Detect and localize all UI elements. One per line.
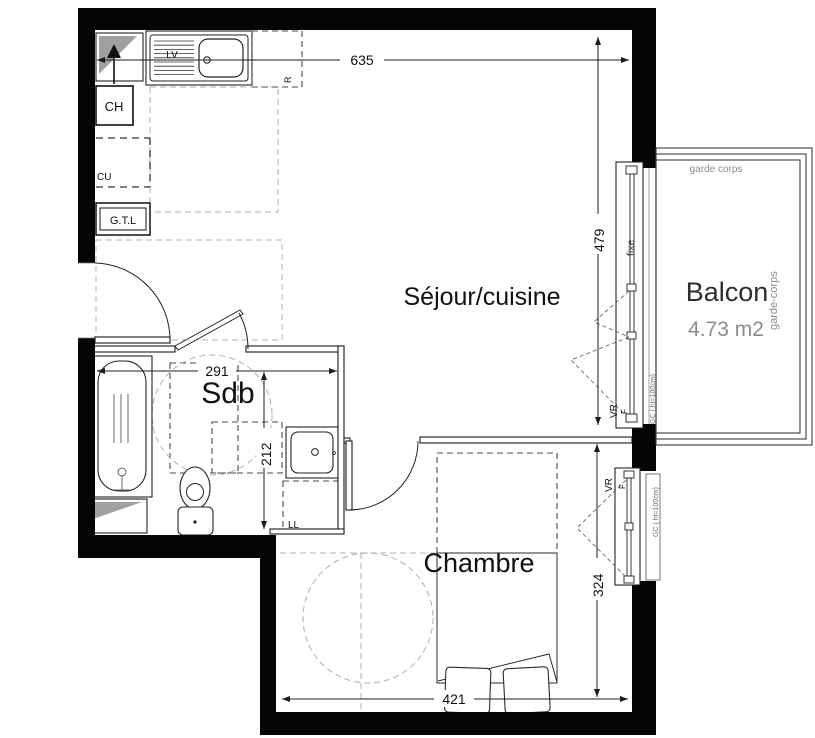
balcony-area: 4.73 m2 (688, 318, 764, 341)
fridge-zone: R (252, 31, 302, 87)
bed-clearance-zone (437, 453, 557, 553)
vr-label: VR (609, 404, 620, 418)
dishwasher-label: LV (166, 50, 178, 61)
room-label-sdb: Sdb (201, 377, 254, 410)
fixe-label: fixe (625, 240, 637, 257)
cu-label: CU (97, 172, 111, 183)
bedroom-door (346, 441, 418, 510)
water-heater-box: CH (96, 86, 133, 125)
kitchen-clearance-zone (150, 87, 278, 212)
toilet (178, 467, 213, 535)
entry-opening-edges (78, 263, 95, 338)
bath-shelf-box (90, 499, 147, 533)
interior-walls (94, 346, 632, 534)
gtl-label: G.T.L (110, 215, 136, 227)
entry-door (95, 263, 170, 343)
gtl-box: G.T.L (96, 203, 150, 235)
fridge-label: R (283, 76, 293, 83)
f-label: F (618, 484, 627, 489)
floorplan-svg: CH CU G.T.L LV R (0, 0, 815, 738)
window-sejour: fixe VR F GC ( ht=100cm) (571, 162, 657, 428)
cu-zone: CU (96, 138, 150, 187)
garde-corps-right-label: garde-corps (768, 271, 780, 330)
gc-note: GC ( ht=100cm) (650, 374, 657, 424)
dim-212: 212 (256, 372, 274, 529)
gc-note: GC ( ht=100cm) (653, 487, 660, 537)
dim-421: 421 (282, 690, 628, 707)
entry-shelf-box (96, 33, 143, 84)
dim-label: 635 (350, 52, 374, 68)
entry-clearance-zone (96, 240, 282, 340)
balcony-label: Balcon (686, 277, 769, 307)
washing-machine-zone: LL (283, 481, 339, 533)
dim-label: 212 (258, 442, 274, 466)
floorplan: CH CU G.T.L LV R (0, 0, 815, 738)
garde-corps-top-label: garde corps (690, 164, 743, 175)
dim-label: 479 (591, 228, 607, 252)
turning-circle-bedroom (280, 553, 437, 711)
water-heater-label: CH (105, 99, 124, 114)
pillow (503, 667, 550, 714)
vr-label: VR (604, 478, 615, 492)
dim-479: 479 (589, 37, 607, 425)
room-label-sejour: Séjour/cuisine (403, 283, 560, 311)
f-label: F (620, 409, 629, 414)
room-label-chambre: Chambre (423, 548, 534, 578)
bathroom-door (175, 310, 248, 350)
dim-label: 421 (442, 691, 466, 707)
washbasin (286, 427, 339, 478)
kitchen-counter: LV (146, 31, 252, 85)
dim-label: 324 (590, 573, 606, 597)
kitchen-sink (199, 39, 243, 77)
bathtub (93, 356, 152, 497)
